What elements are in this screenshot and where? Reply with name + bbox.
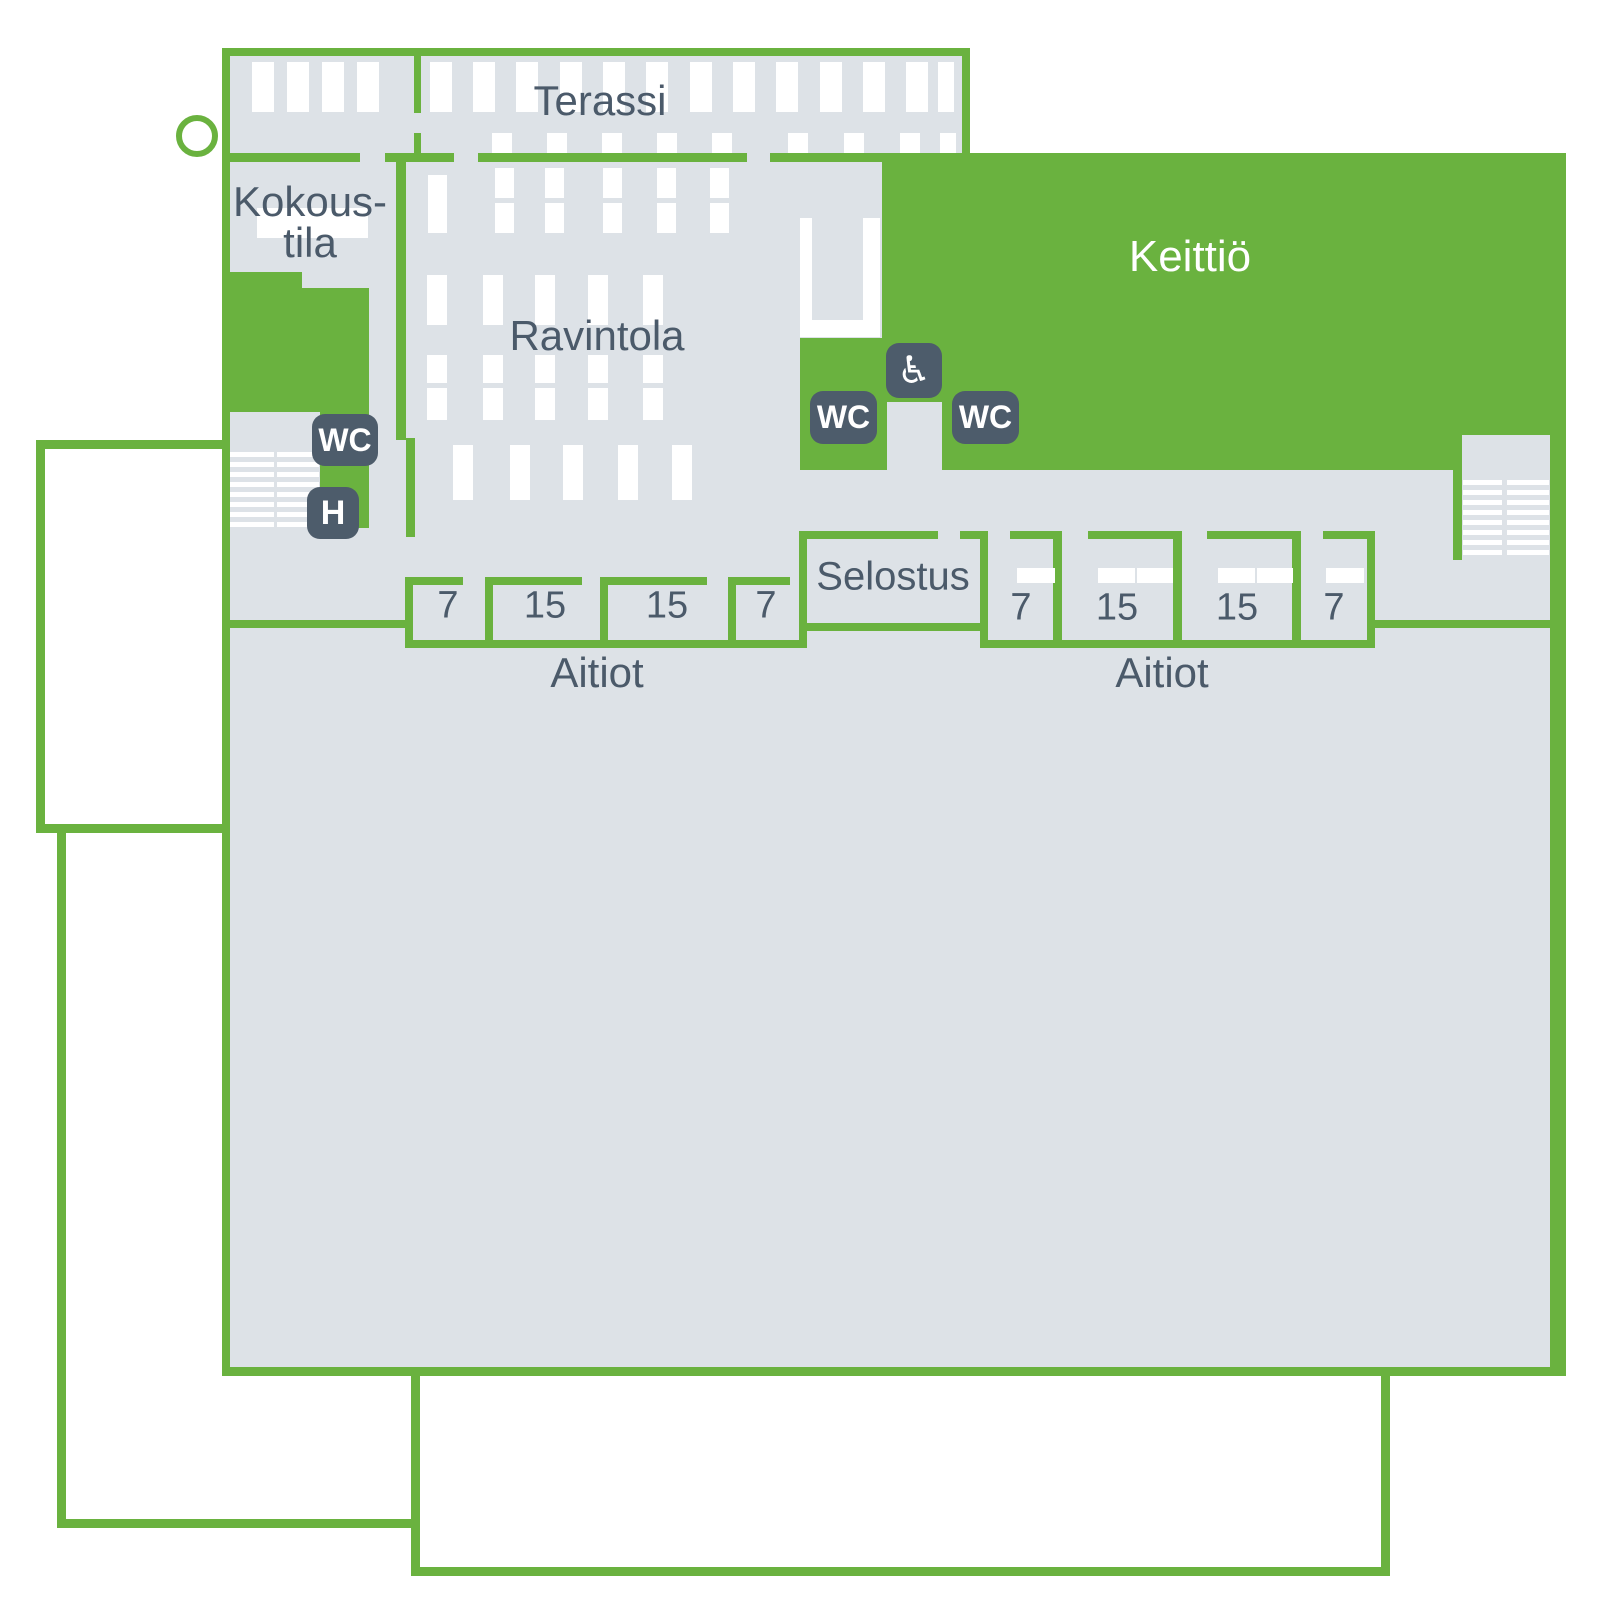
box-capacity: 15	[1096, 587, 1138, 630]
restaurant-table	[563, 445, 583, 500]
terrace-table	[900, 133, 920, 153]
counter-u-inner	[812, 218, 863, 320]
restaurant-table	[483, 275, 503, 325]
terrace-post	[938, 62, 954, 112]
box-table	[1257, 568, 1293, 583]
meeting-room-green-zone	[230, 288, 369, 412]
stairs-right	[1463, 480, 1502, 560]
box-table	[1218, 568, 1255, 583]
box-capacity: 15	[1216, 587, 1258, 630]
wall	[222, 620, 413, 628]
wall	[396, 162, 406, 440]
restaurant-table	[535, 388, 555, 420]
kitchen-label: Keittiö	[1129, 232, 1251, 282]
restaurant-table	[588, 388, 608, 420]
restaurant-table	[603, 203, 622, 233]
restaurant-table	[427, 388, 447, 420]
wheelchair-icon: ♿	[897, 348, 931, 393]
wc-badge-label: WC	[817, 399, 870, 436]
wc-badge: WC	[810, 391, 877, 444]
wc-badge-label: WC	[959, 399, 1012, 436]
restaurant-table	[710, 168, 729, 198]
wall	[1375, 620, 1566, 628]
lower-level-outline	[57, 833, 66, 1528]
lower-level-outline	[36, 440, 222, 833]
box-table	[1098, 568, 1135, 583]
lower-level-outline	[411, 1567, 1390, 1576]
terrace-table	[844, 133, 864, 153]
restaurant-table	[495, 168, 514, 198]
wall	[807, 531, 938, 539]
restaurant-table	[483, 388, 503, 420]
wall	[485, 577, 493, 648]
wall	[728, 577, 736, 648]
restaurant-table	[657, 168, 676, 198]
terrace-post	[906, 62, 928, 112]
terrace-post	[776, 62, 798, 112]
box-capacity: 7	[1323, 587, 1344, 630]
wall	[962, 48, 970, 160]
wall	[222, 48, 230, 1376]
lower-level-outline	[57, 1519, 420, 1528]
wall	[228, 153, 360, 162]
wall	[406, 438, 415, 537]
terrace-post	[357, 62, 379, 112]
wc-badge: WC	[952, 391, 1019, 444]
lower-level-outline	[411, 1376, 420, 1576]
wall	[1053, 531, 1062, 648]
wall	[770, 153, 882, 162]
restaurant-table	[545, 168, 564, 198]
terrace-post	[473, 62, 495, 112]
restaurant-table	[618, 445, 638, 500]
box-table	[1326, 568, 1364, 583]
terrace-table	[788, 133, 808, 153]
restaurant-table	[545, 203, 564, 233]
restaurant-table	[710, 203, 729, 233]
terrace-post	[430, 62, 452, 112]
box-capacity: 7	[1010, 587, 1031, 630]
wall	[1173, 531, 1182, 648]
box-capacity: 15	[524, 585, 566, 628]
wall	[222, 48, 970, 56]
terrace-post	[820, 62, 842, 112]
wall	[600, 577, 608, 648]
entrance-marker	[176, 115, 218, 157]
wall	[988, 640, 1375, 648]
floor-plan: WC H WC ♿ WC Terassi Kokous- tila Ravint…	[0, 0, 1600, 1600]
stairs-left	[229, 452, 274, 530]
box-capacity: 7	[437, 585, 458, 628]
terrace-table	[547, 133, 567, 153]
green-strip-right	[1453, 468, 1462, 560]
box-capacity: 15	[646, 585, 688, 628]
restaurant-table	[672, 445, 692, 500]
wall	[1367, 531, 1375, 648]
meeting-room-label-line2: tila	[283, 219, 337, 267]
lower-level-outline	[1381, 1376, 1390, 1576]
terrace-table	[657, 133, 677, 153]
wall	[405, 640, 807, 648]
restaurant-label: Ravintola	[509, 312, 684, 360]
terrace-post	[322, 62, 344, 112]
box-capacity: 7	[755, 585, 776, 628]
terrace-post	[287, 62, 309, 112]
commentary-booth-label: Selostus	[816, 555, 969, 600]
terrace-table	[492, 133, 512, 153]
wall	[799, 623, 988, 631]
wall	[385, 153, 454, 162]
right-border-wall	[1550, 153, 1566, 1376]
h-badge: H	[307, 487, 359, 539]
terrace-table	[602, 133, 622, 153]
restaurant-table	[643, 388, 663, 420]
wc-corridor-notch	[887, 402, 942, 470]
terrace-table	[712, 133, 732, 153]
wall	[478, 153, 747, 162]
box-table	[1017, 568, 1055, 583]
wall	[405, 577, 413, 648]
restaurant-table	[495, 203, 514, 233]
h-badge-label: H	[321, 494, 346, 533]
wc-badge-label: WC	[318, 422, 371, 459]
terrace-post	[733, 62, 755, 112]
stairs-right	[1507, 480, 1549, 560]
terrace-table	[940, 133, 956, 153]
wc-badge: WC	[312, 414, 378, 466]
box-table	[1137, 568, 1173, 583]
restaurant-table	[427, 355, 447, 383]
terrace-post	[690, 62, 712, 112]
restaurant-table	[428, 175, 447, 233]
wall	[1207, 531, 1301, 539]
restaurant-table	[510, 445, 530, 500]
terrace-post	[863, 62, 885, 112]
terrace-post	[252, 62, 274, 112]
restaurant-table	[453, 445, 473, 500]
restaurant-table	[603, 168, 622, 198]
boxes-label-left: Aitiot	[550, 649, 643, 697]
wall	[414, 56, 421, 113]
terrace-label: Terassi	[533, 77, 666, 125]
wall	[222, 1367, 1566, 1376]
restaurant-table	[427, 275, 447, 325]
restaurant-table	[657, 203, 676, 233]
wall	[1088, 531, 1182, 539]
boxes-label-right: Aitiot	[1115, 649, 1208, 697]
wall	[1292, 531, 1301, 648]
restaurant-table	[483, 355, 503, 383]
accessible-wc-icon: ♿	[886, 343, 942, 398]
